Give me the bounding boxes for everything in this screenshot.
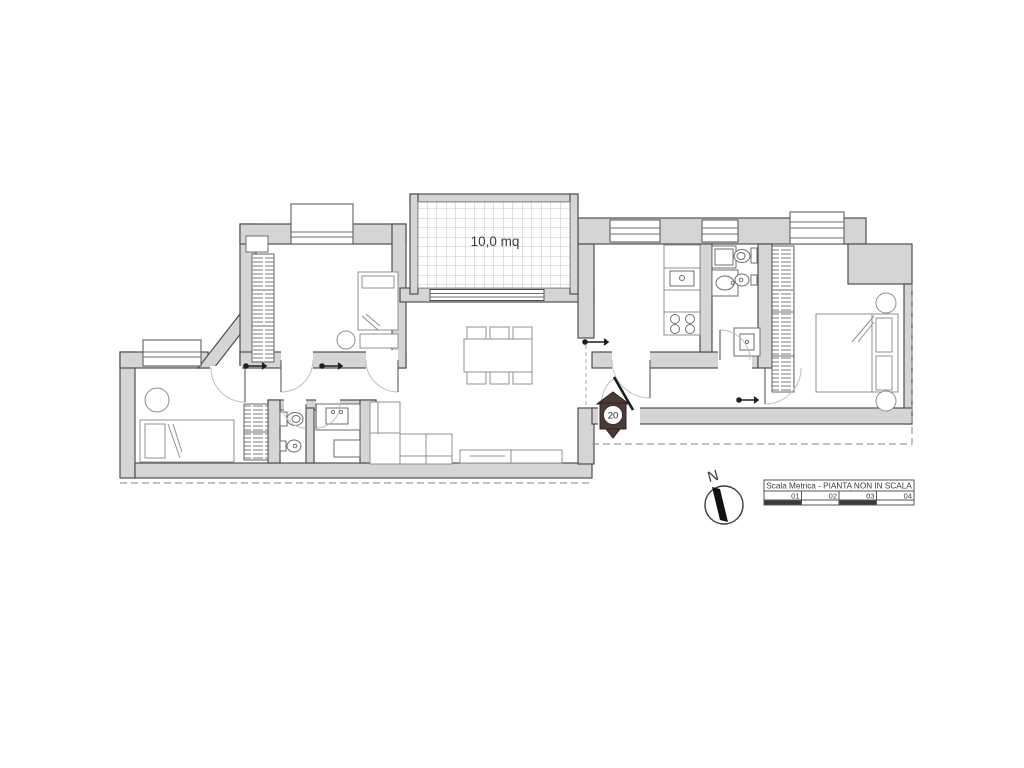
entrance-number: 20 [608,411,619,422]
bath2-bidet [735,274,757,286]
scale-bar-title: Scala Metrica - PIANTA NON IN SCALA [766,482,912,491]
bedroom1-window-bay [291,204,353,244]
leftroom-single-bed [140,420,234,462]
scale-tick: 02 [829,491,837,500]
wall-living-kitchen [578,244,594,338]
scale-tick: 04 [904,491,912,500]
bedroom1-column [246,236,268,252]
leftroom-window-bay [143,340,201,366]
floor-plan-drawing: 10,0 mq [0,0,1024,768]
bedroom1-single-bed [358,272,398,348]
terrace: 10,0 mq [418,202,570,288]
bedroom3-nightstand [876,391,896,411]
laundry-sink-unit [316,404,360,430]
bath2-washing-machine [712,246,736,268]
bath2-washbasin [712,270,738,296]
compass-needle [712,487,728,522]
terrace-rail-top [410,194,578,202]
terrace-area-label: 10,0 mq [471,234,520,249]
wall-bath1-left [268,400,280,463]
bedroom3-window [790,212,844,244]
laundry-boiler [334,440,360,457]
bath1-toilet [280,412,303,426]
kitchen-counter [664,245,700,335]
wall-ne-step [848,244,912,284]
terrace-sliding-door [430,290,544,301]
door-swing-arrow [583,339,608,345]
terrace-rail-right [570,194,578,294]
floor-plan-page: 10,0 mq [0,0,1024,768]
wall-left [120,352,135,478]
wall-bedroom3-right [904,284,912,424]
bedroom3-double-bed [816,314,898,392]
bath2-shower [734,328,760,356]
dining-table [464,327,532,384]
scale-bar: Scala Metrica - PIANTA NON IN SCALA 01 0… [764,480,914,505]
scale-tick: 03 [866,491,874,500]
bedroom3-nightstand [876,293,896,313]
terrace-rail-left [410,194,418,294]
wall-bath1-mid [306,408,314,463]
wall-bottom [135,463,592,478]
leftroom-door [211,368,245,402]
bath1-bidet [280,440,301,452]
bedroom1-wardrobe [252,254,274,362]
hall-wardrobe [244,404,268,460]
bedroom3-wardrobe [772,246,794,392]
door-swing-arrow [737,397,758,403]
bath2-toilet [734,248,757,263]
north-compass: N [705,467,743,524]
compass-north-label: N [706,467,721,486]
leftroom-stool [145,388,169,412]
bath2-window [702,220,738,242]
sofa [370,402,452,464]
wall-kitchen-bath2 [700,244,712,352]
scale-tick: 01 [791,491,799,500]
kitchen-window [610,220,660,242]
sideboard [460,450,562,463]
bedroom1-stool [337,331,355,349]
